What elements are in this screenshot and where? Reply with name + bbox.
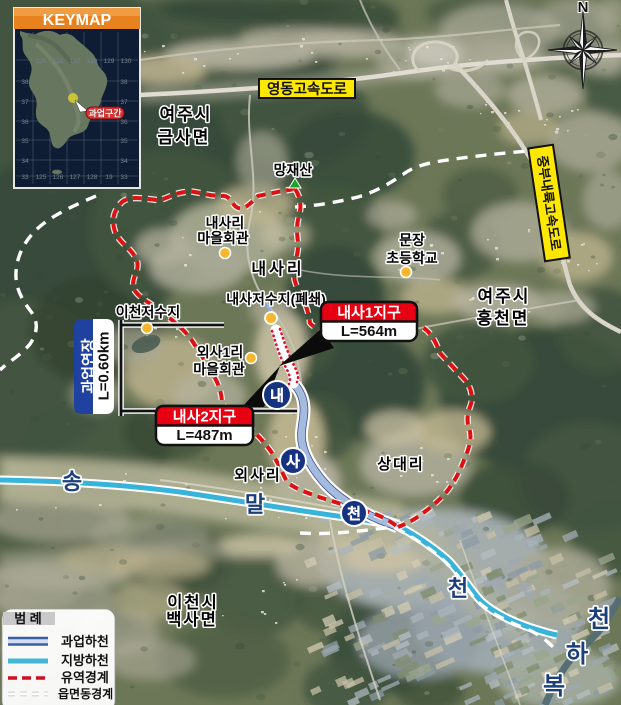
svg-text:문장: 문장 xyxy=(399,232,425,248)
svg-text:초등학교: 초등학교 xyxy=(386,250,438,266)
svg-text:38: 38 xyxy=(21,79,29,86)
svg-text:L=564m: L=564m xyxy=(341,323,397,340)
svg-text:36: 36 xyxy=(21,119,29,126)
svg-text:35: 35 xyxy=(120,138,128,145)
svg-text:백사면: 백사면 xyxy=(166,610,218,629)
svg-text:33: 33 xyxy=(21,174,29,181)
svg-text:말: 말 xyxy=(245,492,265,517)
svg-text:129: 129 xyxy=(104,58,115,65)
svg-text:37: 37 xyxy=(120,99,128,106)
svg-text:내사2지구: 내사2지구 xyxy=(173,409,237,426)
svg-text:과업구간: 과업구간 xyxy=(88,108,122,119)
svg-text:송: 송 xyxy=(62,469,82,494)
svg-text:사: 사 xyxy=(286,454,300,471)
svg-text:36: 36 xyxy=(120,119,128,126)
svg-text:37: 37 xyxy=(21,99,29,106)
svg-text:내사리: 내사리 xyxy=(206,215,245,231)
svg-text:상대리: 상대리 xyxy=(377,456,424,473)
svg-text:128: 128 xyxy=(87,58,98,65)
svg-text:범 례: 범 례 xyxy=(14,611,42,626)
svg-text:127: 127 xyxy=(70,174,81,181)
svg-text:망재산: 망재산 xyxy=(274,162,313,178)
svg-text:이천시: 이천시 xyxy=(167,593,219,612)
svg-text:천: 천 xyxy=(448,576,468,601)
svg-text:128: 128 xyxy=(87,174,98,181)
svg-text:외사리: 외사리 xyxy=(234,466,281,484)
svg-text:지방하천: 지방하천 xyxy=(61,653,109,668)
svg-text:127: 127 xyxy=(70,58,81,65)
svg-text:L=487m: L=487m xyxy=(176,427,232,444)
svg-text:34: 34 xyxy=(120,158,128,165)
svg-text:내사저수지(폐쇄): 내사저수지(폐쇄) xyxy=(226,291,325,307)
svg-text:과업하천: 과업하천 xyxy=(61,634,109,649)
svg-text:내사1지구: 내사1지구 xyxy=(337,305,401,322)
svg-text:125: 125 xyxy=(36,58,47,65)
svg-text:KEYMAP: KEYMAP xyxy=(43,12,112,29)
svg-text:마을회관: 마을회관 xyxy=(197,230,249,246)
svg-text:읍면동경계: 읍면동경계 xyxy=(58,686,113,701)
svg-text:125: 125 xyxy=(36,174,47,181)
svg-text:130: 130 xyxy=(121,58,132,65)
svg-text:126: 126 xyxy=(53,58,64,65)
svg-text:이천저수지: 이천저수지 xyxy=(116,304,180,320)
svg-text:복: 복 xyxy=(543,673,565,700)
svg-text:여주시: 여주시 xyxy=(160,105,213,124)
svg-text:N: N xyxy=(578,0,589,16)
svg-text:하: 하 xyxy=(566,641,588,668)
svg-text:19: 19 xyxy=(105,174,113,181)
svg-text:34: 34 xyxy=(21,158,29,165)
svg-text:내: 내 xyxy=(270,388,284,405)
svg-text:흥천면: 흥천면 xyxy=(477,308,530,328)
svg-text:금사면: 금사면 xyxy=(158,128,211,147)
svg-text:천: 천 xyxy=(347,505,361,523)
svg-text:38: 38 xyxy=(120,79,128,86)
svg-text:유역경계: 유역경계 xyxy=(61,670,109,685)
svg-text:내사리: 내사리 xyxy=(251,260,304,278)
svg-text:외사1리: 외사1리 xyxy=(197,344,243,360)
svg-text:L=0.60km: L=0.60km xyxy=(96,332,113,401)
svg-text:126: 126 xyxy=(53,174,64,181)
svg-text:영동고속도로: 영동고속도로 xyxy=(267,80,347,98)
svg-text:33: 33 xyxy=(120,174,128,181)
svg-text:35: 35 xyxy=(21,138,29,145)
svg-text:마을회관: 마을회관 xyxy=(193,361,245,377)
svg-text:천: 천 xyxy=(588,606,610,633)
svg-text:여주시: 여주시 xyxy=(478,287,531,306)
